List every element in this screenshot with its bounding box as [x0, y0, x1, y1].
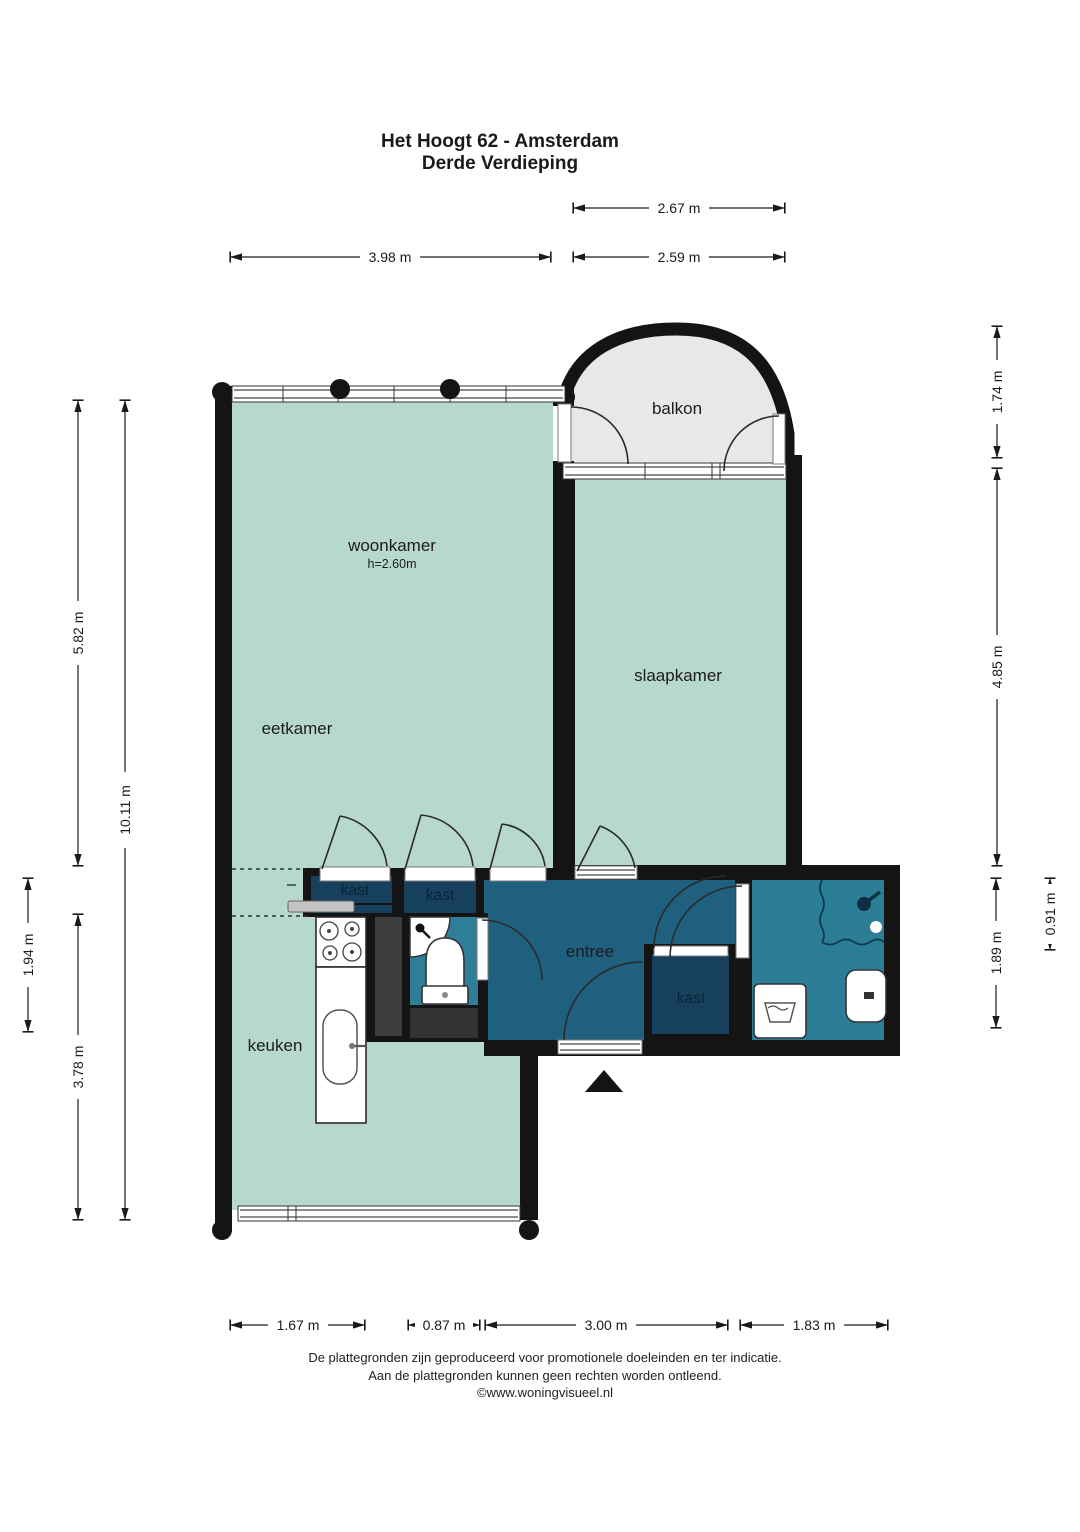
svg-text:2.67 m: 2.67 m [658, 200, 701, 216]
toilet-icon [422, 938, 468, 1004]
footer-line-3: ©www.woningvisueel.nl [477, 1385, 613, 1400]
svg-text:4.85 m: 4.85 m [989, 646, 1005, 689]
label-kast3: kast [677, 990, 706, 1007]
label-woonkamer-height: h=2.60m [368, 557, 417, 571]
stove-icon [316, 917, 366, 967]
opening-entree-eetkamer [490, 867, 546, 881]
dimension-bottom-keuken: 1.67 m [230, 1316, 365, 1334]
door-leaf-balkon-woonkamer [558, 404, 571, 462]
kitchen-counter [316, 967, 366, 1123]
svg-text:1.67 m: 1.67 m [277, 1317, 320, 1333]
window-south [238, 1206, 520, 1221]
opening-kast3 [654, 946, 728, 956]
wall-keuken-east [520, 1040, 538, 1220]
label-kast2: kast [426, 887, 455, 904]
opening-kast2 [405, 867, 475, 881]
worktop-bar [288, 901, 354, 912]
opening-slaapkamer [575, 866, 637, 879]
dimension-left-midden: 1.94 m [19, 878, 37, 1032]
room-woonkamer-eetkamer [232, 400, 553, 870]
svg-text:3.98 m: 3.98 m [369, 249, 412, 265]
svg-text:3.78 m: 3.78 m [70, 1046, 86, 1089]
floorplan-svg: Het Hoogt 62 - Amsterdam Derde Verdiepin… [0, 0, 1080, 1527]
svg-text:2.59 m: 2.59 m [658, 249, 701, 265]
opening-front-door [558, 1040, 642, 1054]
wall-badkamer-east [884, 865, 900, 1056]
washing-machine-icon [754, 984, 806, 1038]
footer-line-1: De plattegronden zijn geproduceerd voor … [308, 1350, 781, 1365]
dimension-bottom-badkamer: 1.83 m [740, 1316, 888, 1334]
wall-woon-slaap-divider [553, 478, 575, 880]
svg-text:0.87 m: 0.87 m [423, 1317, 466, 1333]
opening-kast1 [320, 867, 390, 881]
svg-text:1.89 m: 1.89 m [988, 932, 1004, 975]
label-keuken: keuken [248, 1036, 303, 1055]
label-balkon: balkon [652, 399, 702, 418]
wall-slaapkamer-east [786, 455, 802, 880]
svg-text:1.94 m: 1.94 m [20, 934, 36, 977]
svg-text:0.91 m: 0.91 m [1042, 893, 1058, 936]
svg-text:3.00 m: 3.00 m [585, 1317, 628, 1333]
column-dot [330, 379, 350, 399]
footer-line-2: Aan de plattegronden kunnen geen rechten… [368, 1368, 721, 1383]
label-entree: entree [566, 942, 614, 961]
door-leaf-balkon-slaapkamer [773, 414, 785, 464]
label-eetkamer: eetkamer [262, 719, 333, 738]
page-title: Het Hoogt 62 - Amsterdam [381, 131, 619, 152]
svg-text:5.82 m: 5.82 m [70, 612, 86, 655]
dimension-right-balkon: 1.74 m [988, 326, 1006, 458]
dimension-left-totaal: 10.11 m [116, 400, 134, 1220]
kitchen-tap-dot [349, 1043, 355, 1049]
column-dot [440, 379, 460, 399]
column-dot [519, 1220, 539, 1240]
dimension-top-woonkamer: 3.98 m [230, 248, 551, 266]
window-north [232, 386, 565, 402]
window-balkon [563, 463, 786, 479]
column-dot [212, 382, 232, 402]
label-kast1: kast [341, 882, 370, 899]
floorplan-page: Het Hoogt 62 - Amsterdam Derde Verdiepin… [0, 0, 1080, 1527]
dimension-left-woonkamer: 5.82 m [69, 400, 87, 866]
svg-text:1.83 m: 1.83 m [793, 1317, 836, 1333]
shaft-2 [410, 1008, 478, 1038]
dimension-right-badkamer: 1.89 m [987, 878, 1005, 1028]
dimension-right-douche: 0.91 m [1041, 878, 1059, 950]
svg-text:10.11 m: 10.11 m [117, 785, 133, 835]
svg-text:1.74 m: 1.74 m [989, 371, 1005, 414]
label-woonkamer: woonkamer [347, 536, 436, 555]
footer: De plattegronden zijn geproduceerd voor … [308, 1350, 781, 1400]
label-slaapkamer: slaapkamer [634, 666, 722, 685]
dimension-top-slaapkamer: 2.59 m [573, 248, 785, 266]
door-leaf-badkamer [736, 884, 749, 958]
bathroom-sink-icon [846, 970, 886, 1022]
wall-west [215, 386, 232, 1232]
wall-entree-south [484, 1040, 900, 1056]
dimension-left-keuken: 3.78 m [69, 914, 87, 1220]
entrance-arrow-icon [585, 1070, 623, 1092]
door-leaf-toilet [477, 918, 488, 980]
shaft-1 [375, 917, 402, 1036]
page-subtitle: Derde Verdieping [422, 153, 578, 174]
column-dot [212, 1220, 232, 1240]
dimension-right-slaapkamer: 4.85 m [988, 468, 1006, 866]
dimension-top-balkon: 2.67 m [573, 199, 785, 217]
dimension-bottom-midden: 0.87 m [408, 1316, 480, 1334]
dimension-bottom-entree: 3.00 m [485, 1316, 728, 1334]
